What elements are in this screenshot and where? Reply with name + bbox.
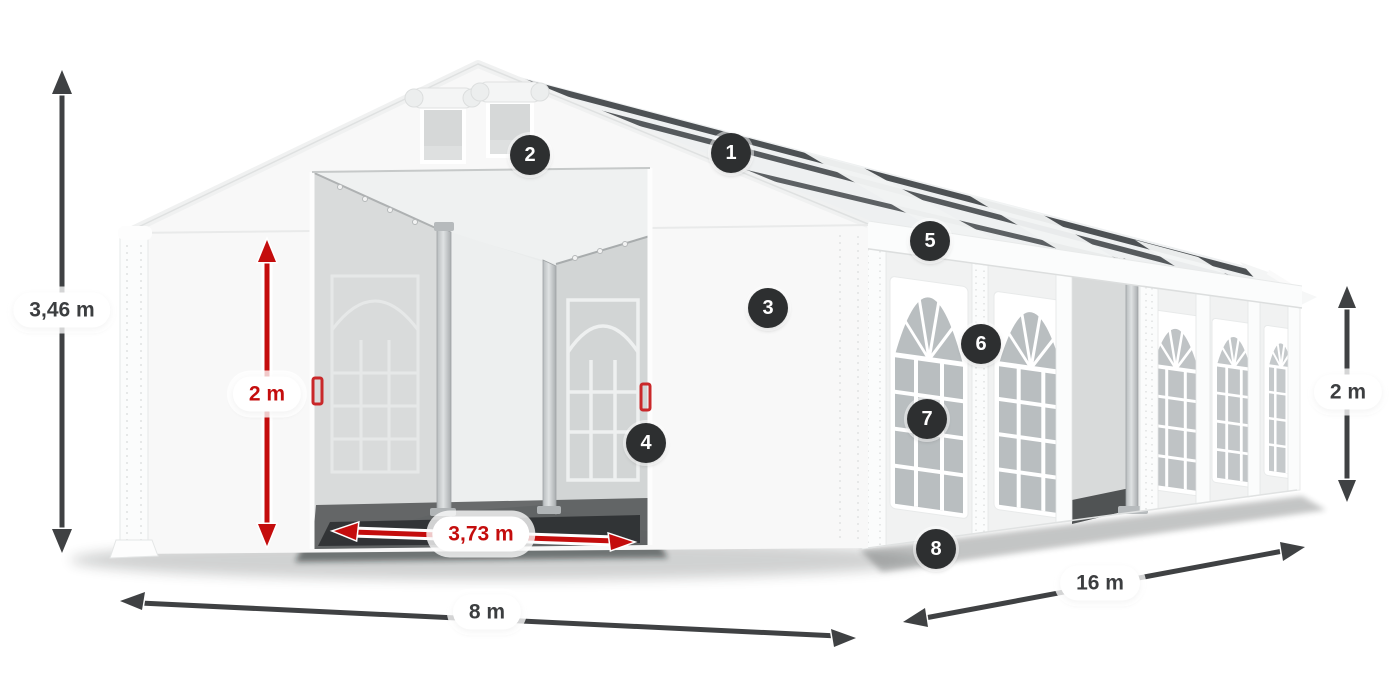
tent-illustration bbox=[0, 0, 1400, 700]
feature-marker-1[interactable]: 1 bbox=[711, 133, 751, 173]
side-entrance-opening bbox=[1072, 262, 1148, 524]
dimension-entrance-height-label: 2 m bbox=[233, 376, 301, 411]
feature-marker-3[interactable]: 3 bbox=[748, 288, 788, 328]
feature-marker-4[interactable]: 4 bbox=[626, 423, 666, 463]
dimension-total-height-label: 3,46 m bbox=[13, 292, 110, 327]
tent-dimension-diagram: 3,46 m 2 m 3,73 m 8 m 16 m 2 m 1 2 3 4 5… bbox=[0, 0, 1400, 700]
feature-marker-6[interactable]: 6 bbox=[961, 324, 1001, 364]
side-window-1 bbox=[890, 276, 968, 519]
entrance-right-door bbox=[556, 236, 650, 532]
entrance-left-door bbox=[312, 172, 440, 549]
feature-marker-2[interactable]: 2 bbox=[510, 135, 550, 175]
entrance-opening bbox=[312, 168, 650, 549]
dimension-side-height-label: 2 m bbox=[1314, 374, 1382, 409]
dimension-width-label: 8 m bbox=[453, 594, 521, 629]
dimension-entrance-width-label: 3,73 m bbox=[432, 516, 529, 551]
feature-marker-5[interactable]: 5 bbox=[910, 221, 950, 261]
feature-marker-7[interactable]: 7 bbox=[907, 399, 947, 439]
dimension-length-label: 16 m bbox=[1060, 565, 1140, 600]
feature-marker-8[interactable]: 8 bbox=[916, 529, 956, 569]
